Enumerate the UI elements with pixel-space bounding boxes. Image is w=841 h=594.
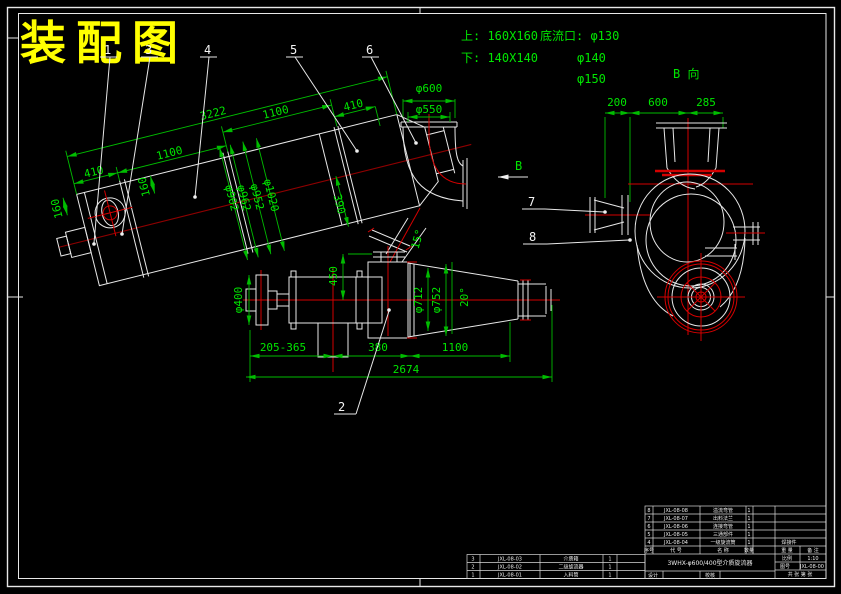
bom-cell: 1 <box>608 573 611 579</box>
bom-cell: 出料法兰 <box>713 515 733 522</box>
cyclone-view: φ400 450 φ712 φ752 20° 205-365 380 1100 … <box>232 246 560 382</box>
dim-dia-400: φ400 <box>232 287 245 314</box>
part-label-6: 6 <box>366 43 373 57</box>
note-underflow-1: 底流口: φ130 <box>540 28 619 43</box>
bom-header-cell: 备 注 <box>807 547 819 554</box>
part-leaders: 1 3 4 5 6 7 8 2 <box>92 43 632 414</box>
view-b-arrow-label: B <box>515 159 522 173</box>
dim-285: 285 <box>696 96 716 109</box>
bom-cell: 1 <box>608 557 611 563</box>
bom-header-cell: 重 量 <box>781 547 793 554</box>
dim-dia-712: φ712 <box>412 287 425 314</box>
dim-angle-15: 15° <box>409 228 427 251</box>
part-label-5: 5 <box>290 43 297 57</box>
bom-cell: JXL-08-02 <box>497 565 522 571</box>
note-lower-size: 下: 140X140 <box>461 51 538 65</box>
size-notes: 上: 160X160 下: 140X140 底流口: φ130 φ140 φ15… <box>461 28 699 86</box>
bom-cell: 1 <box>747 516 750 522</box>
dim-elbow-550: φ550 <box>416 103 443 116</box>
bom-cell: JXL-08-01 <box>497 573 522 579</box>
bom-cell: 5 <box>647 532 650 538</box>
bom-cell: 介质箱 <box>563 556 578 563</box>
dim-elbow-600: φ600 <box>416 82 443 95</box>
bottom-flange <box>657 253 745 341</box>
bom-cell: 6 <box>647 524 650 530</box>
bom-cell: 7 <box>647 516 650 522</box>
dim-1100-a: 1100 <box>155 144 184 163</box>
bom-cell: 8 <box>647 508 650 514</box>
dim-200: 200 <box>607 96 627 109</box>
note-underflow-2: φ140 <box>577 51 606 65</box>
dim-160-b: 160 <box>136 176 153 198</box>
bom-cell: 溢流弯管 <box>713 507 733 514</box>
view-b-title: B 向 <box>673 66 699 81</box>
bom-cell: 1 <box>747 524 750 530</box>
bom-cell: 二级旋流器 <box>558 564 583 571</box>
part-label-7: 7 <box>528 195 535 209</box>
dim-1100-b: 1100 <box>261 103 290 122</box>
bom-cell: 1 <box>747 508 750 514</box>
drawing-no-label: 图号 <box>780 564 790 570</box>
bom-upper: 8 JXL-08-08 溢流弯管 1 7 JXL-08-07 出料法兰 1 6 … <box>647 507 796 546</box>
drawing-canvas: 装配图 上: 160X160 下: 140X140 底流口: φ130 φ140… <box>0 0 841 594</box>
note-upper-size: 上: 160X160 <box>461 29 538 43</box>
dim-380: 380 <box>368 341 388 354</box>
bom-cell: 三通部件 <box>713 531 733 538</box>
part-label-4: 4 <box>204 43 211 57</box>
scale-label: 比例 <box>782 555 792 562</box>
bom-cell: 1 <box>747 532 750 538</box>
dim-450: 450 <box>327 266 340 286</box>
drawing-no: JXL-08-00 <box>799 564 824 570</box>
dim-205-365: 205-365 <box>260 341 306 354</box>
dim-1100-c: 1100 <box>442 341 469 354</box>
bom-cell: 焊接件 <box>781 539 796 546</box>
bom-cell: JXL-08-06 <box>663 524 688 530</box>
bom-header-cell: 名 称 <box>717 547 729 554</box>
bom-cell: 1 <box>608 565 611 571</box>
bom-cell: JXL-08-05 <box>663 532 688 538</box>
bom-cell: 4 <box>647 540 650 546</box>
part-label-8: 8 <box>529 230 536 244</box>
bom-cell: JXL-08-08 <box>663 508 688 514</box>
bom-cell: JXL-08-07 <box>663 516 688 522</box>
dim-410-b: 410 <box>342 97 364 114</box>
check-cell: 校核 <box>705 572 715 579</box>
bom-header-cell: 数量 <box>744 547 754 554</box>
bom-cell: 3 <box>471 557 474 563</box>
bom-header-cell: 序号 <box>644 547 654 554</box>
dim-2674: 2674 <box>393 363 420 376</box>
dim-160-a: 160 <box>48 197 65 219</box>
dim-410: 410 <box>83 163 105 180</box>
bom-cell: JXL-08-03 <box>497 557 522 563</box>
b-view: 200 600 285 <box>585 96 765 341</box>
overflow-elbow: φ600 φ550 B <box>401 82 528 209</box>
bom-cell: 1 <box>471 573 474 579</box>
dim-390: 390 <box>331 193 348 215</box>
drawing-title: 3WHX-φ600/400型介质旋流器 <box>667 559 752 567</box>
title-block: 8 JXL-08-08 溢流弯管 1 7 JXL-08-07 出料法兰 1 6 … <box>467 506 826 579</box>
bom-cell: 一级旋流筒 <box>710 539 735 546</box>
cad-drawing-sheet: 装配图 上: 160X160 下: 140X140 底流口: φ130 φ140… <box>0 0 841 594</box>
note-underflow-3: φ150 <box>577 72 606 86</box>
bom-cell: 连接弯管 <box>713 523 733 530</box>
feed-inlet-circle <box>82 185 138 242</box>
dim-dia-752: φ752 <box>430 287 443 314</box>
bom-cell: 入料筒 <box>563 572 578 579</box>
part-label-3: 3 <box>145 43 152 57</box>
bom-cell: 1 <box>747 540 750 546</box>
dim-angle-20: 20° <box>458 287 471 307</box>
bom-cell: 2 <box>471 565 474 571</box>
bom-header-cell: 代 号 <box>670 547 682 554</box>
scale-value: 1:10 <box>807 556 818 562</box>
bom-cell: JXL-08-04 <box>663 540 688 546</box>
design-cell: 设计 <box>648 572 658 579</box>
part-label-1: 1 <box>104 43 111 57</box>
dim-600: 600 <box>648 96 668 109</box>
sheet-info: 共 张 第 张 <box>788 571 813 578</box>
bom-lower: 3 JXL-08-03 介质箱 1 2 JXL-08-02 二级旋流器 1 1 … <box>471 556 611 579</box>
part-label-2: 2 <box>338 400 345 414</box>
bom-header: 序号 代 号 名 称 数量 重 量 备 注 <box>644 547 819 554</box>
